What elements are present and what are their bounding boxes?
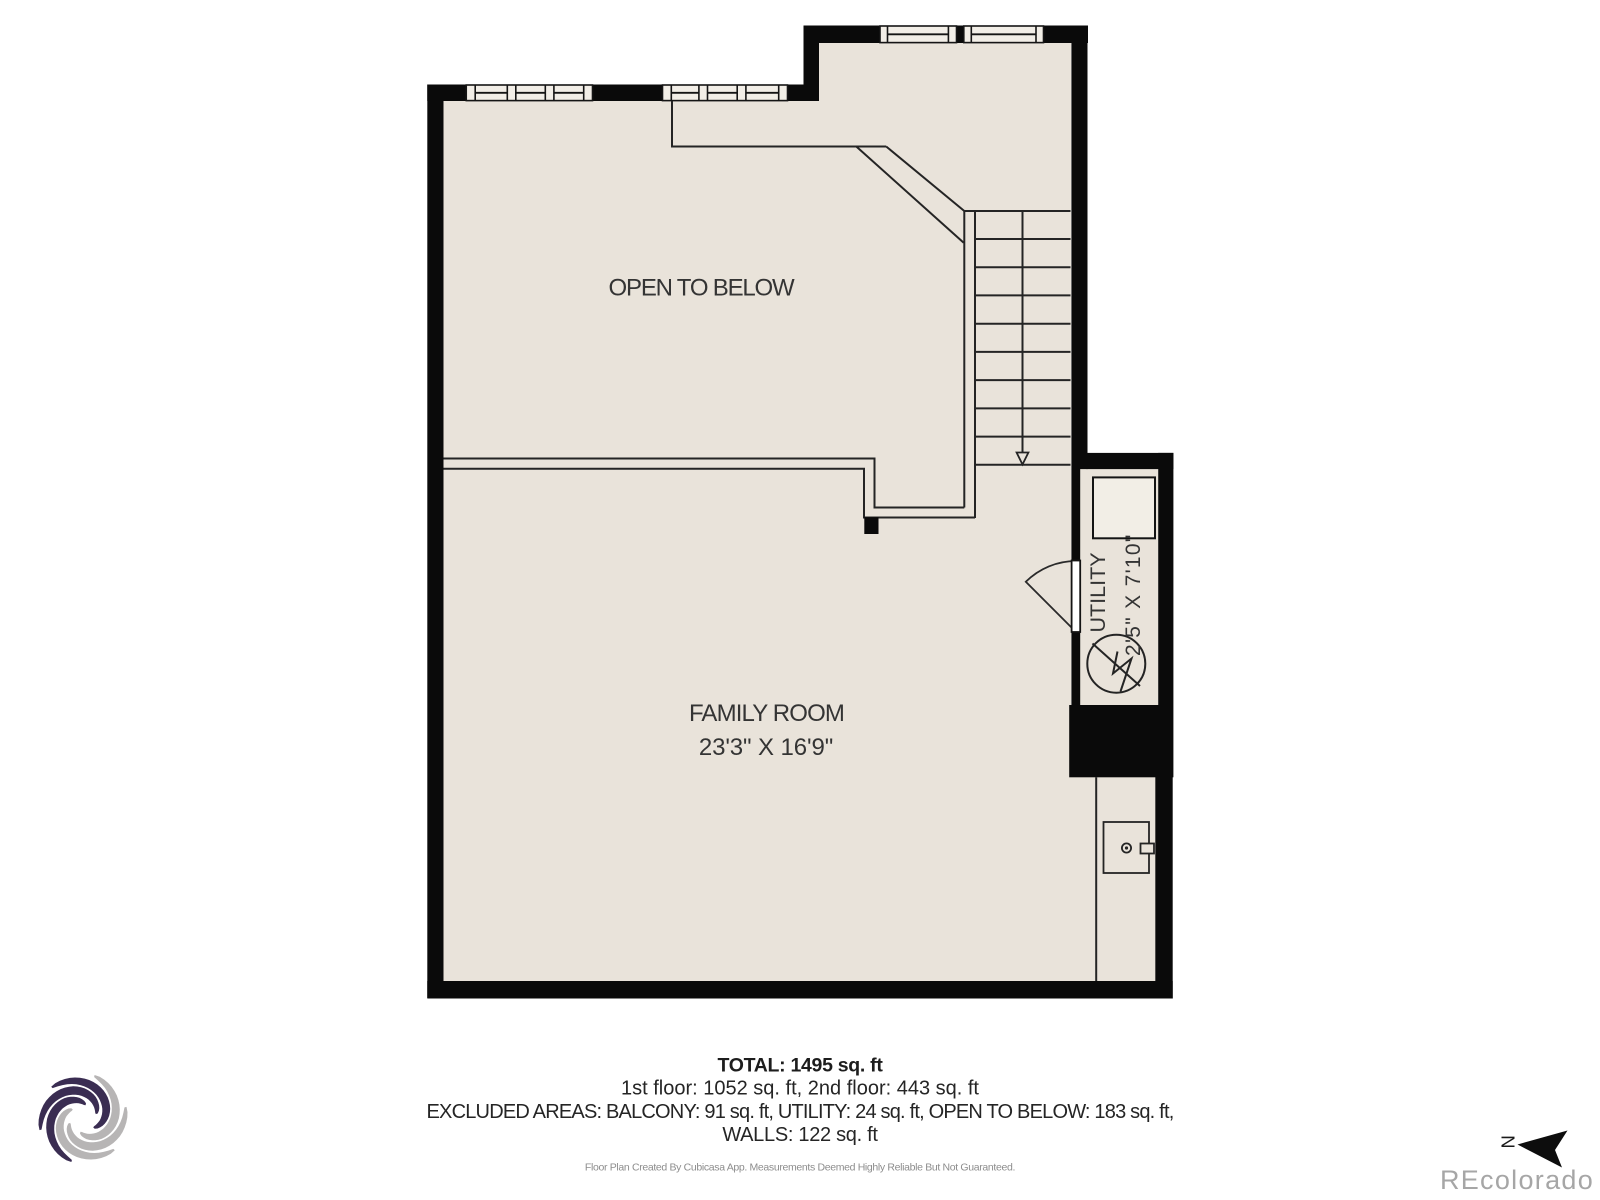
svg-text:TOTAL: 1495 sq. ft: TOTAL: 1495 sq. ft	[717, 1054, 883, 1076]
svg-text:REcolorado: REcolorado	[1440, 1165, 1594, 1195]
svg-text:N: N	[1498, 1135, 1519, 1148]
svg-text:EXCLUDED AREAS: BALCONY: 91 sq: EXCLUDED AREAS: BALCONY: 91 sq. ft, UTIL…	[427, 1101, 1174, 1123]
svg-text:UTILITY: UTILITY	[1086, 552, 1110, 632]
svg-text:Floor Plan Created By Cubicasa: Floor Plan Created By Cubicasa App. Meas…	[585, 1162, 1015, 1174]
svg-text:2'5" X 7'10": 2'5" X 7'10"	[1122, 533, 1145, 656]
svg-text:WALLS: 122 sq. ft: WALLS: 122 sq. ft	[722, 1124, 878, 1146]
svg-text:1st floor: 1052 sq. ft, 2nd fl: 1st floor: 1052 sq. ft, 2nd floor: 443 s…	[621, 1078, 979, 1100]
svg-text:23'3" X 16'9": 23'3" X 16'9"	[699, 734, 833, 761]
svg-text:OPEN TO BELOW: OPEN TO BELOW	[609, 275, 795, 302]
svg-text:FAMILY ROOM: FAMILY ROOM	[689, 700, 844, 727]
